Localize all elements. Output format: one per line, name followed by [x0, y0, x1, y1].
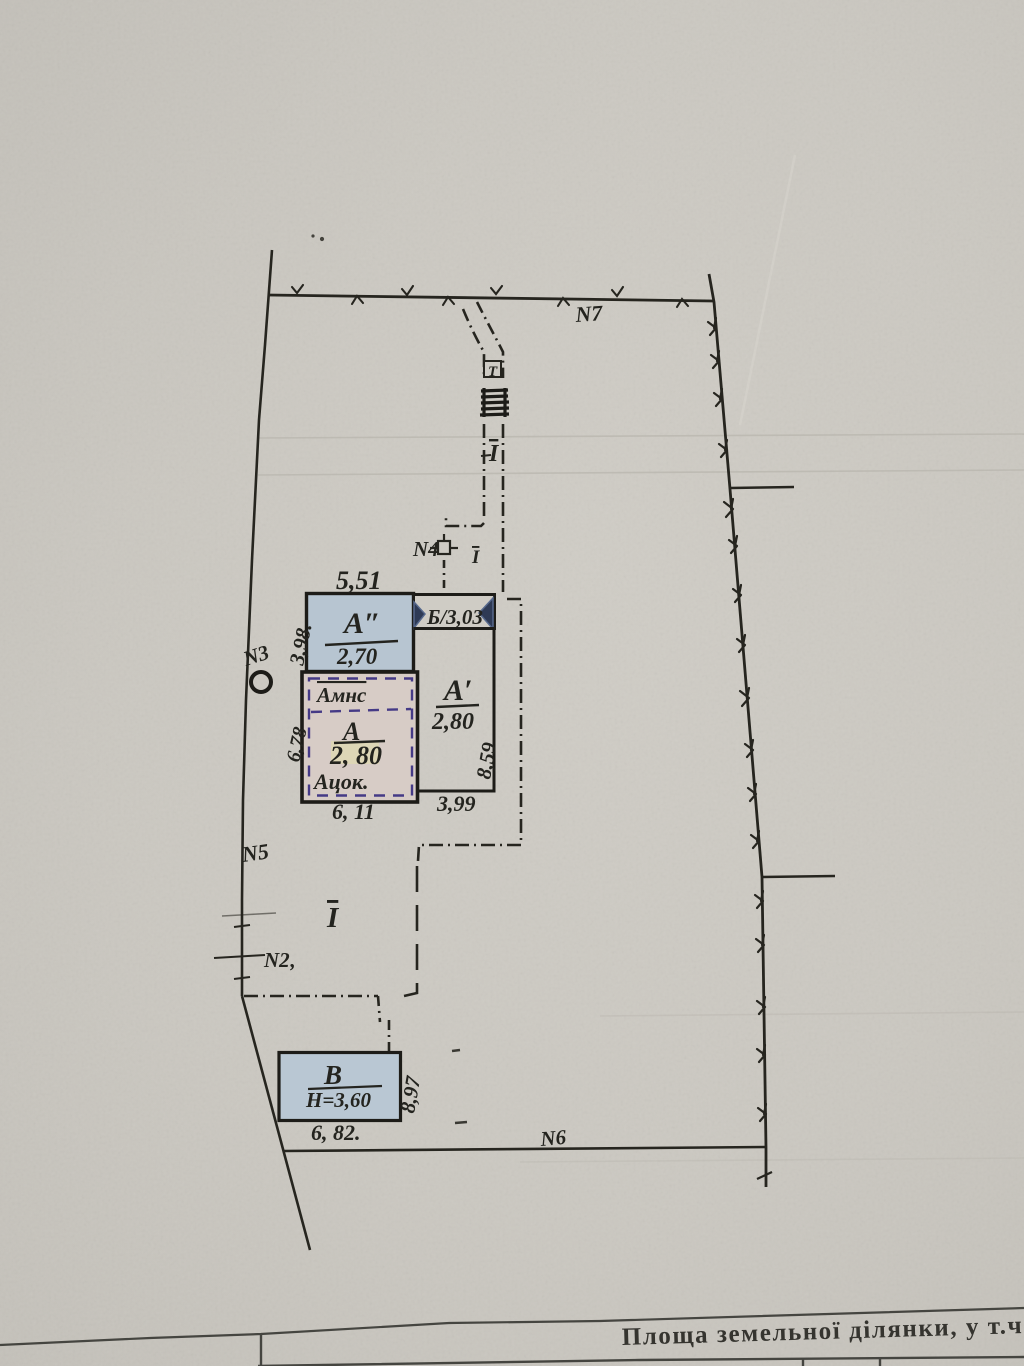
svg-text:A″: A″ [342, 607, 381, 640]
svg-text:A′: A′ [442, 674, 472, 707]
svg-text:6, 82.: 6, 82. [311, 1120, 361, 1145]
svg-text:H=3,60: H=3,60 [305, 1088, 372, 1112]
svg-text:I: I [471, 547, 480, 568]
svg-text:T: T [488, 364, 498, 380]
svg-text:6, 11: 6, 11 [332, 799, 375, 824]
svg-text:3,99: 3,99 [436, 791, 476, 816]
svg-text:N6: N6 [538, 1125, 567, 1151]
svg-text:2,70: 2,70 [336, 644, 378, 669]
svg-text:B: B [323, 1060, 342, 1090]
svg-text:2,80: 2,80 [431, 709, 474, 735]
svg-text:N5: N5 [239, 838, 270, 867]
svg-text:I: I [326, 902, 340, 934]
svg-text:Амнс: Амнс [315, 683, 367, 707]
svg-text:I: I [488, 441, 500, 467]
svg-text:Ацок.: Ацок. [312, 769, 369, 794]
svg-text:5,51: 5,51 [336, 566, 382, 595]
svg-text:Б/3,03: Б/3,03 [426, 605, 483, 629]
svg-text:2, 80: 2, 80 [329, 741, 382, 770]
svg-text:N2‚: N2‚ [263, 948, 297, 972]
svg-text:N7: N7 [574, 300, 605, 327]
